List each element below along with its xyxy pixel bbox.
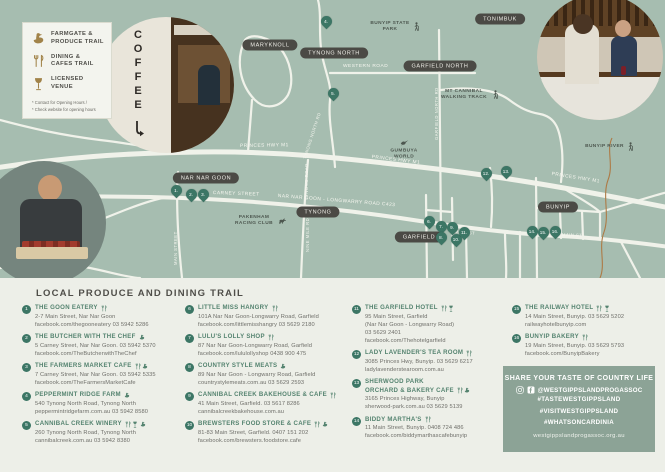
map-marker-11: 11.: [459, 227, 470, 238]
farmgate-icon: [139, 334, 145, 341]
arrow-down-icon: [134, 121, 146, 142]
hashtag: #VISITWESTGIPPSLAND: [503, 406, 655, 418]
list-item-2: 2 THE BUTCHER WITH THE CHEF 5 Carney Str…: [22, 333, 182, 358]
item-number: 8: [185, 363, 194, 372]
list-item-15: 15 THE RAILWAY HOTEL 14 Main Street, Bun…: [512, 304, 658, 329]
list-item-14: 14 BIDDY MARTHA'S 11 Main Street, Bunyip…: [352, 416, 508, 441]
item-number: 13: [352, 379, 361, 388]
map-marker-4: 4.: [321, 16, 332, 27]
coffee-awning: [174, 25, 234, 35]
map-label-tynong-north: TYNONG NORTH: [300, 48, 368, 59]
map-marker-2: 2.: [186, 189, 197, 200]
farmgate-icon: [124, 392, 130, 399]
list-item-12: 12 LADY LAVENDER'S TEA ROOM 3085 Princes…: [352, 349, 508, 374]
hiker-icon: [412, 22, 421, 32]
legend-licensed: LICENSEDVENUE: [32, 76, 111, 92]
road-label-western-road: WESTERN ROAD: [343, 64, 388, 69]
list-item-8: 8 COUNTRY STYLE MEATS 89 Nar Nar Goon - …: [185, 362, 349, 387]
item-number: 4: [22, 392, 31, 401]
map-marker-15: 15.: [538, 227, 549, 238]
brochure-page: COFFEE FARMGATE &PRODUCE: [0, 0, 665, 472]
website-url: westgippslandprogassoc.org.au: [503, 433, 655, 439]
map-marker-16: 16.: [550, 226, 561, 237]
dining-icon: [425, 416, 431, 423]
list-item-13: 13 SHERWOOD PARK ORCHARD & BAKERY CAFE 3…: [352, 378, 508, 411]
road-label-main-street-nng: MAIN STREET: [173, 231, 178, 265]
legend-dining: DINING &CAFES TRAIL: [32, 54, 111, 70]
hashtag: #TASTEWESTGIPPSLAND: [503, 394, 655, 406]
map-marker-12: 12.: [481, 168, 492, 179]
map-marker-14: 14.: [527, 226, 538, 237]
map-marker-7: 7.: [436, 221, 447, 232]
producer-head: [38, 175, 62, 201]
poi-gumbuya-world: GUMBUYA WORLD: [386, 138, 422, 161]
facebook-icon: [527, 386, 535, 394]
road-label-princes-hwy-1: PRINCES HWY M1: [240, 143, 289, 149]
produce-tray: [16, 247, 88, 259]
social-handle: @WESTGIPPSLANDPROGASSOC: [503, 386, 655, 394]
licensed-icon: [604, 305, 610, 312]
dining-icon: [596, 305, 602, 312]
list-item-3: 3 THE FARMERS MARKET CAFE 7 Carney Stree…: [22, 362, 182, 387]
map-label-tonimbuk: TONIMBUK: [475, 14, 525, 25]
map-marker-1: 1.: [171, 185, 182, 196]
wine-glass-icon: [32, 77, 45, 91]
farmgate-icon: [464, 387, 470, 394]
listing-panel: LOCAL PRODUCE AND DINING TRAIL 1 THE GOO…: [0, 278, 665, 472]
dining-icon: [466, 350, 472, 357]
listing-column-4: 15 THE RAILWAY HOTEL 14 Main Street, Bun…: [512, 304, 658, 362]
list-item-7: 7 LULU'S LOLLY SHOP 87 Nar Nar Goon-Long…: [185, 333, 349, 358]
list-item-4: 4 PEPPERMINT RIDGE FARM 540 Tynong North…: [22, 391, 182, 416]
item-number: 3: [22, 363, 31, 372]
hiker-icon: [491, 90, 500, 100]
list-item-5: 5 CANNIBAL CREEK WINERY 260 Tynong North…: [22, 420, 182, 445]
map-marker-9: 9.: [447, 222, 458, 233]
dining-icon: [457, 387, 463, 394]
dining-icon: [125, 421, 131, 428]
item-number: 1: [22, 305, 31, 314]
list-item-9: 9 CANNIBAL CREEK BAKEHOUSE & CAFE 41 Mai…: [185, 391, 349, 416]
dining-icon: [268, 334, 274, 341]
licensed-icon: [448, 305, 454, 312]
map-marker-6: 6.: [424, 216, 435, 227]
map-marker-13: 13.: [501, 166, 512, 177]
road-label-nine-mile-rd: NINE MILE RD: [305, 218, 310, 252]
item-number: 7: [185, 334, 194, 343]
list-item-16: 16 BUNYIP BAKERY 19 Main Street, Bunyip.…: [512, 333, 658, 358]
photo-winery-bar: [537, 0, 663, 120]
item-number: 11: [352, 305, 361, 314]
instagram-icon: [516, 386, 524, 394]
dining-icon: [272, 305, 278, 312]
map-legend: FARMGATE &PRODUCE TRAIL DINING &CAFES TR…: [22, 22, 112, 119]
farmgate-icon: [142, 363, 148, 370]
poi-pakenham-racing-club: PAKENHAM RACING CLUB: [232, 215, 294, 227]
poi-bunyip-river: BUNYIP RIVER: [585, 142, 635, 152]
customer-head: [573, 14, 593, 34]
farmgate-icon: [280, 363, 286, 370]
item-number: 5: [22, 421, 31, 430]
farmgate-icon: [322, 421, 328, 428]
bird-icon: [400, 138, 409, 148]
map-marker-5: 5.: [328, 88, 339, 99]
bartender-head: [615, 20, 631, 37]
map-label-garfield-north: GARFIELD NORTH: [404, 61, 477, 72]
listing-column-1: 1 THE GOON EATERY 2-7 Main Street, Nar N…: [22, 304, 182, 449]
duck-icon: [32, 32, 45, 46]
map-marker-3: 3.: [198, 189, 209, 200]
road-label-main-st-bunyip: MAIN ST: [562, 232, 583, 238]
horse-icon: [278, 216, 287, 226]
map-label-nar-nar-goon: NAR NAR GOON: [173, 173, 239, 184]
bar-counter-front: [537, 77, 663, 120]
list-item-11: 11 THE GARFIELD HOTEL 95 Main Street, Ga…: [352, 304, 508, 345]
item-number: 14: [352, 417, 361, 426]
poi-bunyip-state-park: BUNYIP STATE PARK: [370, 21, 424, 33]
hashtag: #WHATSONCARDINIA: [503, 417, 655, 429]
hiker-icon: [626, 142, 635, 152]
map-label-bunyip: BUNYIP: [538, 202, 578, 213]
list-item-10: 10 BREWSTERS FOOD STORE & CAFE 81-83 Mai…: [185, 420, 349, 445]
dining-icon: [582, 334, 588, 341]
dining-icon: [330, 392, 336, 399]
poi-mt-cannibal: MT CANNIBAL WALKING TRACK: [439, 89, 505, 101]
coffee-sign-text: COFFEE: [132, 29, 144, 113]
share-title: SHARE YOUR TASTE OF COUNTRY LIFE: [503, 375, 655, 382]
bottle-row: [545, 0, 655, 26]
wine-glass-photo: [621, 66, 626, 75]
dining-icon: [441, 305, 447, 312]
fork-spoon-icon: [32, 54, 45, 68]
farmgate-icon: [140, 421, 146, 428]
list-item-1: 1 THE GOON EATERY 2-7 Main Street, Nar N…: [22, 304, 182, 329]
licensed-icon: [132, 421, 138, 428]
dining-icon: [135, 363, 141, 370]
item-number: 15: [512, 305, 521, 314]
section-title: LOCAL PRODUCE AND DINING TRAIL: [36, 288, 244, 299]
social-share-panel: SHARE YOUR TASTE OF COUNTRY LIFE @WESTGI…: [503, 366, 655, 452]
item-number: 6: [185, 305, 194, 314]
item-number: 9: [185, 392, 194, 401]
photo-coffee-shop: COFFEE: [98, 17, 234, 153]
barista-figure: [198, 65, 220, 105]
listing-column-3: 11 THE GARFIELD HOTEL 95 Main Street, Ga…: [352, 304, 508, 445]
list-item-6: 6 LITTLE MISS HANGRY 101A Nar Nar Goon-L…: [185, 304, 349, 329]
item-number: 12: [352, 350, 361, 359]
dining-icon: [101, 305, 107, 312]
map-label-maryknoll: MARYKNOLL: [242, 40, 297, 51]
map-label-tynong: TYNONG: [296, 207, 339, 218]
item-number: 10: [185, 421, 194, 430]
item-number: 2: [22, 334, 31, 343]
dining-icon: [314, 421, 320, 428]
road-label-tynong-road: TYNONG ROAD: [304, 163, 309, 200]
item-number: 16: [512, 334, 521, 343]
legend-farmgate: FARMGATE &PRODUCE TRAIL: [32, 31, 111, 47]
map-marker-8: 8.: [436, 232, 447, 243]
listing-column-2: 6 LITTLE MISS HANGRY 101A Nar Nar Goon-L…: [185, 304, 349, 449]
legend-note: * Contact for Opening Hours /* Check web…: [32, 99, 111, 113]
map: COFFEE FARMGATE &PRODUCE: [0, 0, 665, 278]
